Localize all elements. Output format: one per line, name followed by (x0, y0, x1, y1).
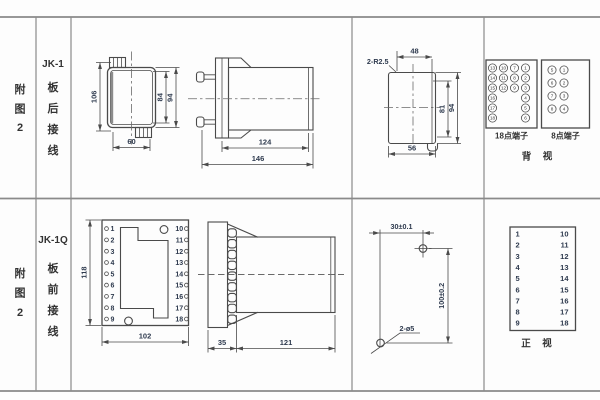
terminal-number: 3 (563, 94, 566, 99)
screw-head (197, 72, 205, 82)
wiring-label-char: 板 (48, 261, 60, 275)
figure-label-char: 图 (15, 103, 26, 116)
terminal-number: 5 (551, 68, 554, 73)
terminal-number: 1 (524, 66, 527, 71)
table-cell: 18 (560, 319, 568, 328)
table-cell: 8 (516, 308, 520, 317)
mounting-tab (428, 144, 438, 152)
terminal-number: 4 (111, 260, 115, 267)
terminal-number: 5 (524, 106, 527, 111)
figure-label-row2: 附 图 2 (15, 266, 26, 319)
terminal-number: 14 (490, 76, 496, 81)
screw-head (197, 117, 205, 127)
table-cell: 9 (516, 319, 520, 328)
corner-radius-label: 2-R2.5 (367, 57, 389, 66)
terminal-number: 8 (513, 76, 516, 81)
figure-label-char: 2 (17, 307, 23, 319)
terminal-number: 2 (563, 81, 566, 86)
table-cell: 17 (560, 308, 568, 317)
figure-label-char: 附 (15, 266, 26, 280)
terminal-pin (185, 295, 189, 299)
terminal-number: 16 (175, 294, 183, 301)
dim-inner-height: 84 (156, 92, 165, 101)
socket-terminals-left: 123456789 (105, 226, 115, 323)
model-name: JK-1 (42, 59, 64, 70)
screw-terminal (228, 293, 237, 301)
wiring-label-char: 接 (48, 122, 59, 136)
dim-total: 146 (252, 154, 265, 163)
rear-view-label: 背 视 (522, 151, 554, 163)
table-cell: 6 (516, 285, 520, 294)
mounting-hole (125, 317, 133, 325)
screw-terminal (228, 250, 237, 258)
jk1-side-view-drawing: 124 146 (188, 58, 322, 169)
jk1-top-view-drawing: 48 2-R2.5 81 94 56 (367, 47, 461, 158)
terminal-number: 13 (490, 66, 496, 71)
terminal-number: 3 (524, 86, 527, 91)
socket-terminals-right: 101112131415161718 (175, 226, 188, 323)
table-cell: 13 (560, 263, 568, 272)
terminal-number: 10 (175, 226, 183, 233)
dim-outer: 94 (447, 103, 456, 112)
terminal-number: 11 (176, 238, 184, 245)
dim-width: 60 (127, 137, 135, 146)
jk1q-side-view-drawing: 35 121 (198, 222, 344, 353)
terminal-number: 15 (490, 86, 496, 91)
socket-key-outline (121, 228, 169, 319)
dim-horizontal: 30±0.1 (391, 222, 413, 231)
flange-chamfer (229, 58, 252, 138)
terminal-pin (105, 317, 109, 321)
front-terminal-table: 123456789 101112131415161718 (510, 227, 576, 331)
terminal-number: 9 (111, 317, 115, 324)
model-label-row2: JK-1Q 板 前 接 线 (38, 235, 68, 338)
figure-label-row1: 附 图 2 (15, 82, 26, 134)
terminal-number: 17 (490, 106, 496, 111)
mounting-hole (160, 226, 168, 234)
screw-terminal (228, 283, 237, 291)
terminal-number: 1 (563, 68, 566, 73)
terminal-pin (185, 272, 189, 276)
screw-shaft (204, 120, 216, 124)
wiring-label-char: 板 (48, 80, 60, 94)
terminal-pin (185, 249, 189, 253)
dim-body: 121 (280, 338, 293, 347)
terminal-8-label: 8点端子 (551, 131, 579, 141)
dim-height: 118 (80, 266, 89, 278)
terminal-number: 10 (501, 66, 507, 71)
dim-inner: 81 (438, 105, 447, 113)
technical-drawing-canvas: 附 图 2 JK-1 板 后 接 线 附 图 2 JK-1Q 板 前 接 线 1… (0, 0, 600, 400)
terminal-number: 17 (175, 305, 183, 312)
dim-width: 102 (139, 332, 152, 341)
terminal-number: 16 (490, 96, 496, 101)
wiring-label-char: 前 (48, 282, 59, 296)
table-cell: 1 (516, 230, 520, 239)
drill-hole (377, 339, 385, 347)
terminal-pin (185, 261, 189, 265)
terminal-number: 2 (524, 76, 527, 81)
case-top-outline (389, 73, 436, 144)
terminal-grid-8: 51627384 (548, 66, 568, 113)
terminal-table-right-column: 101112131415161718 (560, 230, 569, 328)
dim-body: 124 (259, 138, 272, 147)
terminal-table-left-column: 123456789 (516, 230, 521, 328)
screw-shaft (204, 75, 216, 79)
dim-top: 48 (410, 47, 418, 56)
leader-line (389, 66, 396, 73)
terminal-number: 12 (501, 86, 507, 91)
terminal-number: 18 (175, 317, 183, 324)
terminal-number: 5 (111, 271, 115, 278)
terminal-number: 11 (501, 76, 506, 81)
table-cell: 15 (560, 285, 568, 294)
terminal-ribs (114, 58, 122, 68)
table-cell: 3 (516, 252, 520, 261)
table-cell: 10 (560, 230, 568, 239)
terminal-pin (185, 238, 189, 242)
table-grid (0, 17, 600, 391)
table-cell: 7 (516, 296, 520, 305)
screw-terminal (228, 272, 237, 280)
drill-template-drawing: 30±0.1 100±0.2 2-ø5 (369, 222, 453, 354)
terminal-number: 1 (111, 226, 115, 233)
wiring-label-char: 接 (48, 303, 59, 317)
table-cell: 11 (561, 241, 569, 250)
terminal-pin (105, 227, 109, 231)
terminal-number: 7 (111, 294, 115, 301)
terminal-number: 7 (551, 94, 554, 99)
wiring-label-char: 后 (48, 101, 59, 115)
dim-total-height: 106 (90, 91, 99, 104)
terminal-number: 9 (513, 86, 516, 91)
table-cell: 5 (516, 274, 520, 283)
rear-terminal-8: 51627384 8点端子 (542, 60, 590, 141)
terminal-number: 4 (524, 96, 527, 101)
terminal-number: 12 (175, 249, 183, 256)
terminal-number: 6 (551, 81, 554, 86)
table-cell: 16 (560, 296, 568, 305)
terminal-pin (105, 249, 109, 253)
front-view-label: 正 视 (521, 338, 553, 350)
terminal-grid-18: 131071141182151293164175186 (488, 64, 529, 122)
terminal-pin (185, 317, 189, 321)
dim-case-height: 94 (166, 93, 175, 102)
screw-terminal-column (228, 229, 237, 324)
terminal-pin (105, 261, 109, 265)
terminal-pin (185, 306, 189, 310)
figure-label-char: 附 (15, 82, 26, 96)
terminal-number: 18 (490, 116, 496, 121)
terminal-pin (105, 272, 109, 276)
terminal-number: 14 (175, 271, 183, 278)
wiring-label-char: 线 (48, 324, 59, 338)
figure-label-char: 图 (15, 287, 26, 300)
jk1-rear-case-drawing: 106 84 94 60 (90, 52, 180, 152)
table-cell: 12 (560, 252, 568, 261)
terminal-number: 3 (111, 249, 115, 256)
table-cell: 14 (560, 274, 569, 283)
terminal-pin (185, 227, 189, 231)
terminal-ribs (140, 128, 148, 138)
figure-label-char: 2 (17, 122, 23, 134)
terminal-number: 8 (551, 107, 554, 112)
screw-terminal (228, 240, 237, 248)
model-label-row1: JK-1 板 后 接 线 (42, 59, 64, 157)
screw-terminal (228, 229, 237, 237)
dim-bottom: 56 (408, 144, 416, 153)
dim-vertical: 100±0.2 (437, 283, 446, 309)
screw-terminal (228, 304, 237, 312)
hole-crosshair (415, 230, 432, 258)
terminal-pin (105, 283, 109, 287)
table-cell: 2 (516, 241, 520, 250)
terminal-pin (105, 238, 109, 242)
terminal-pin (185, 283, 189, 287)
model-name: JK-1Q (38, 235, 68, 246)
terminal-number: 6 (111, 283, 115, 290)
terminal-number: 2 (111, 238, 115, 245)
terminal-18-label: 18点端子 (495, 131, 528, 141)
terminal-pin (105, 295, 109, 299)
jk1q-front-view-drawing: 123456789 101112131415161718 118 102 (80, 220, 189, 346)
screw-terminal (228, 261, 237, 269)
figure-sheet: 附 图 2 JK-1 板 后 接 线 附 图 2 JK-1Q 板 前 接 线 1… (0, 0, 600, 400)
wiring-label-char: 线 (48, 143, 59, 157)
terminal-number: 15 (175, 283, 183, 290)
terminal-number: 7 (513, 66, 516, 71)
dim-plate: 35 (218, 338, 226, 347)
terminal-pin (105, 306, 109, 310)
terminal-number: 13 (175, 260, 183, 267)
holes-label: 2-ø5 (400, 324, 415, 333)
terminal-number: 8 (111, 305, 115, 312)
terminal-number: 4 (563, 107, 566, 112)
rear-terminal-18: 131071141182151293164175186 18点端子 (486, 60, 537, 141)
table-cell: 4 (516, 263, 521, 272)
terminal-number: 6 (524, 116, 527, 121)
